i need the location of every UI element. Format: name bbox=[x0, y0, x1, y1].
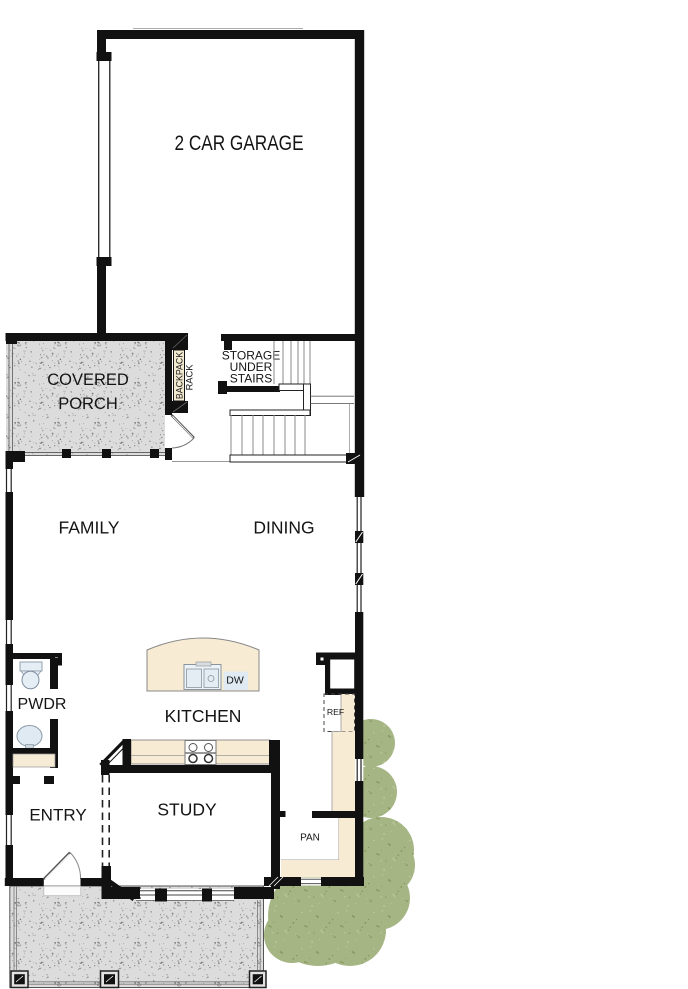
svg-text:BACKPACK: BACKPACK bbox=[175, 352, 185, 399]
svg-text:REF: REF bbox=[327, 707, 344, 717]
svg-text:PORCH: PORCH bbox=[58, 395, 118, 413]
svg-text:2 CAR GARAGE: 2 CAR GARAGE bbox=[174, 133, 303, 156]
svg-text:ENTRY: ENTRY bbox=[29, 806, 86, 825]
svg-text:DW: DW bbox=[226, 675, 244, 687]
svg-text:FAMILY: FAMILY bbox=[59, 518, 120, 538]
svg-text:PWDR: PWDR bbox=[18, 696, 67, 713]
svg-text:COVERED: COVERED bbox=[47, 371, 129, 389]
svg-text:STAIRS: STAIRS bbox=[230, 372, 272, 386]
svg-text:STUDY: STUDY bbox=[157, 800, 217, 820]
svg-text:DINING: DINING bbox=[253, 518, 314, 538]
svg-text:KITCHEN: KITCHEN bbox=[165, 706, 242, 726]
svg-text:RACK: RACK bbox=[185, 364, 195, 391]
svg-text:PAN: PAN bbox=[300, 833, 320, 844]
